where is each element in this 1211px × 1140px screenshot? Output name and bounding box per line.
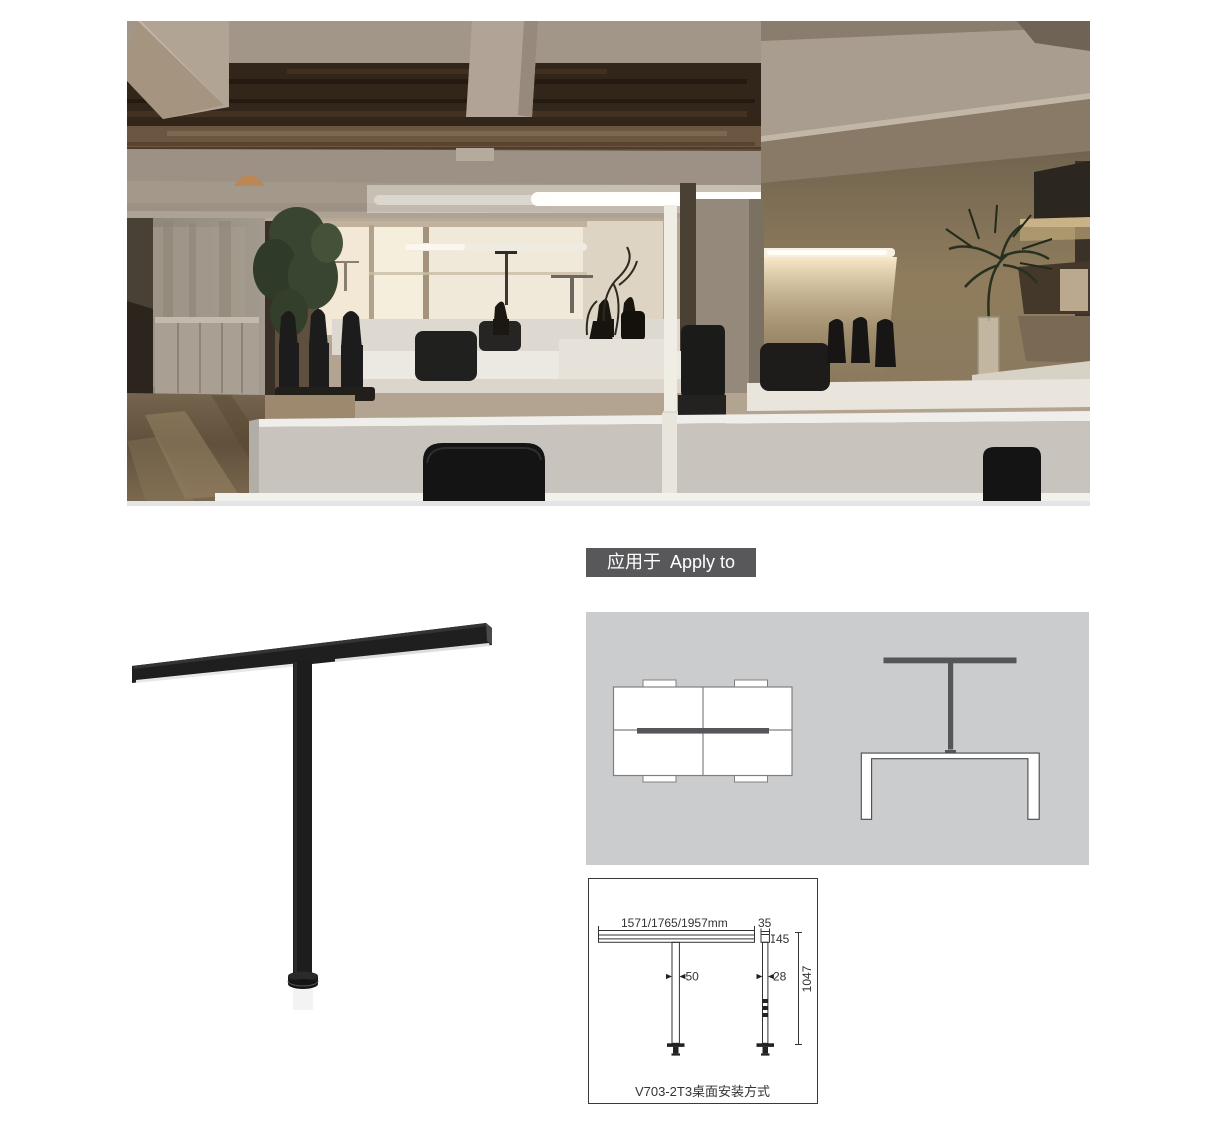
svg-text:1047: 1047: [800, 965, 814, 992]
svg-text:45: 45: [776, 932, 790, 946]
svg-text:50: 50: [685, 969, 699, 983]
svg-text:1571/1765/1957mm: 1571/1765/1957mm: [621, 916, 728, 930]
svg-text:35: 35: [758, 916, 772, 930]
svg-text:28: 28: [773, 969, 787, 983]
